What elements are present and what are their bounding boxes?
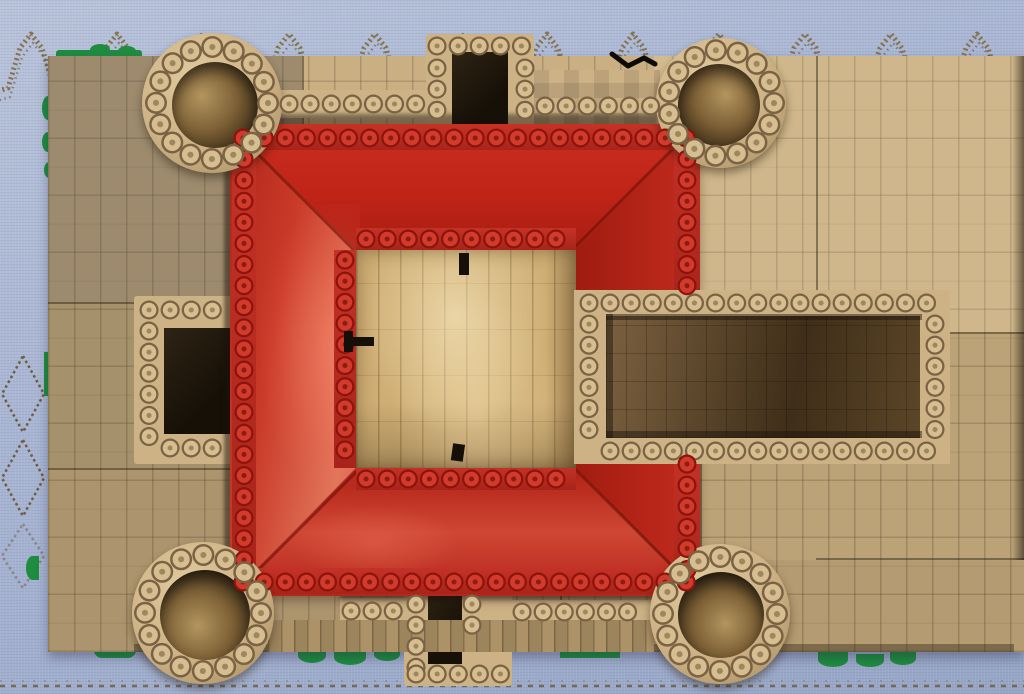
black-cord xyxy=(612,54,655,66)
stud-detail-layer xyxy=(0,0,1024,694)
courtyard-clip-west xyxy=(344,331,374,352)
stud-rows xyxy=(145,46,939,674)
courtyard-clip-north xyxy=(459,253,469,275)
courtyard-clip-south xyxy=(451,443,465,462)
lego-castle-photo xyxy=(0,0,1024,694)
black-clip-details xyxy=(344,253,469,462)
